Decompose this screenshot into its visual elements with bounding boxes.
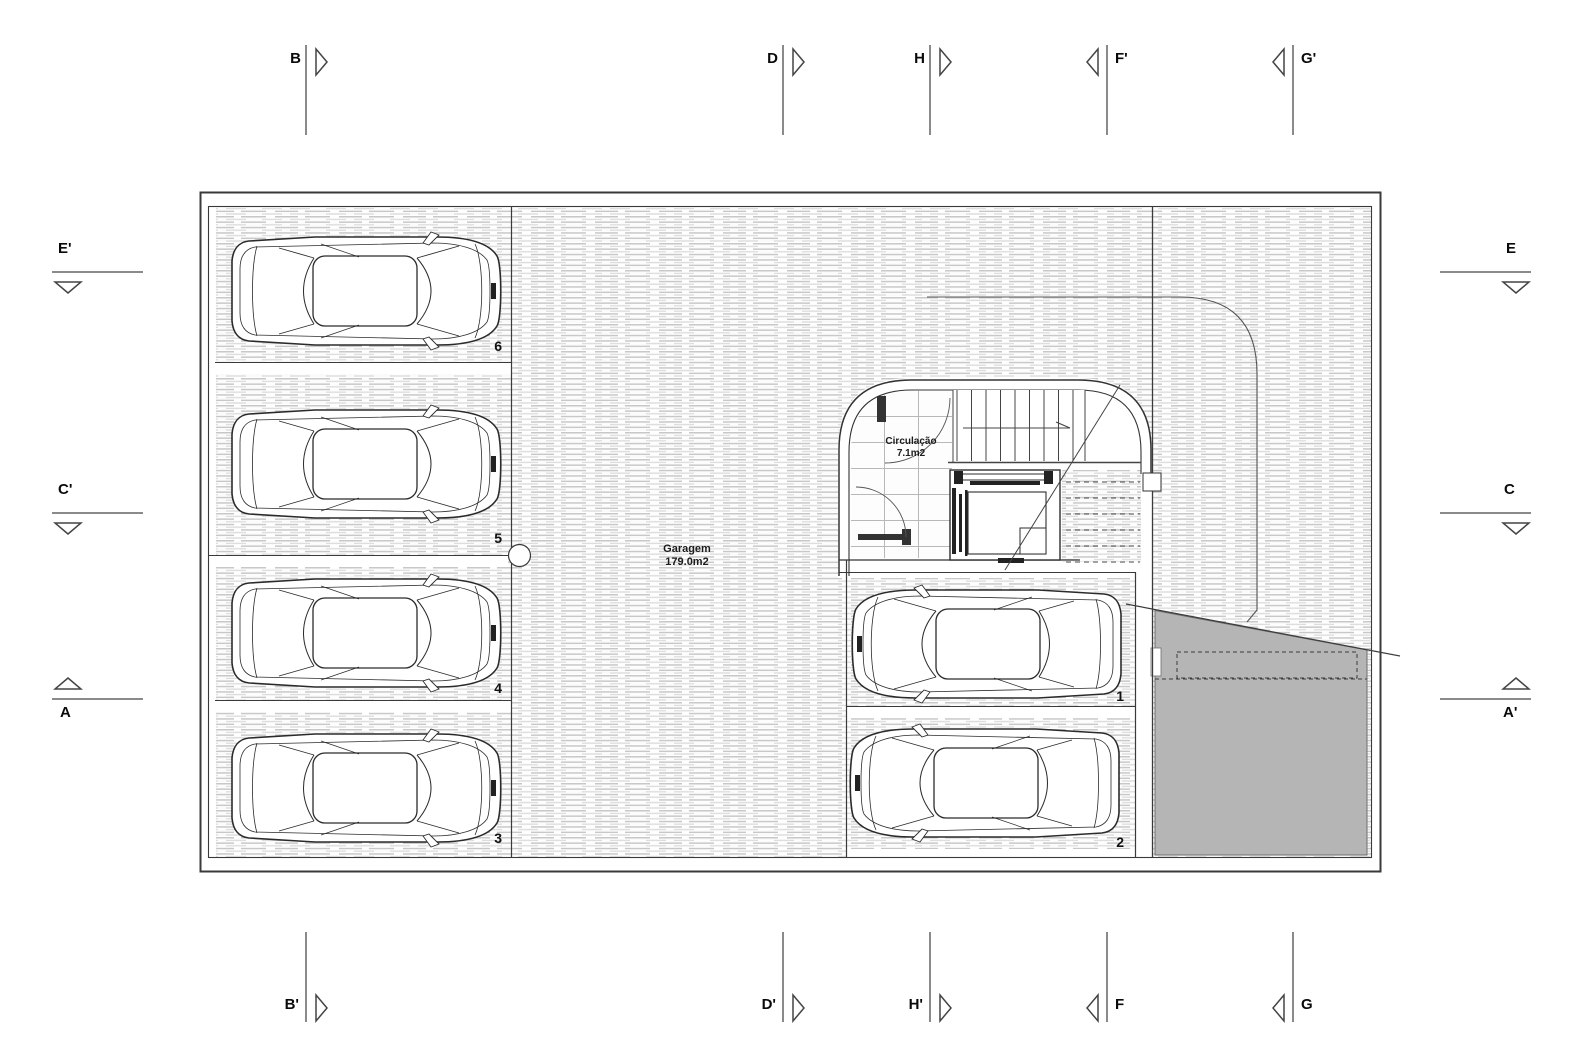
view-direction-icon-F2 (1085, 47, 1100, 77)
section-line-A2 (1440, 698, 1531, 700)
ramp-slope-line (1126, 604, 1400, 656)
garage-floor-hatch (215, 207, 1372, 858)
door-bottom (856, 487, 911, 545)
garage-room-label: Garagem 179.0m2 (632, 543, 742, 569)
garage-room-name: Garagem (632, 543, 742, 556)
car-stall-1 (852, 585, 1121, 703)
section-line-F2 (1106, 45, 1108, 135)
car-stall-6 (232, 232, 501, 350)
car-stall-4 (232, 574, 501, 692)
stair-core-area (838, 378, 1152, 578)
section-line-C2 (52, 512, 143, 514)
circulation-room-area: 7.1m2 (861, 448, 961, 460)
view-direction-icon-D (791, 47, 806, 77)
view-direction-icon-D2 (791, 993, 806, 1023)
section-label-C: C (1504, 481, 1515, 498)
section-line-E2 (52, 271, 143, 273)
stall-number-3: 3 (472, 830, 502, 846)
section-line-H2 (929, 932, 931, 1022)
stall-number-1: 1 (1094, 688, 1124, 704)
stall-number-4: 4 (472, 680, 502, 696)
section-line-E (1440, 271, 1531, 273)
stair-section-cut-line (1005, 385, 1120, 570)
circulation-floor-tiles (851, 391, 952, 558)
section-label-C2: C' (58, 481, 72, 498)
view-direction-icon-G2 (1271, 47, 1286, 77)
section-line-G2 (1292, 45, 1294, 135)
view-direction-icon-C2 (53, 521, 83, 536)
section-label-D2: D' (730, 996, 776, 1013)
stall-number-2: 2 (1094, 834, 1124, 850)
section-line-D (782, 45, 784, 135)
section-line-A (52, 698, 143, 700)
stair-run (948, 390, 1141, 463)
car-stall-5 (232, 405, 501, 523)
section-line-B (305, 45, 307, 135)
floor-plan-canvas: Garagem 179.0m2 Circulação 7.1m2 6 5 4 3… (0, 0, 1572, 1058)
view-direction-icon-A2 (1501, 676, 1531, 691)
car-stall-2 (850, 724, 1119, 842)
section-label-D: D (732, 50, 778, 67)
section-label-F2: F' (1115, 50, 1128, 67)
section-line-C (1440, 512, 1531, 514)
section-label-G: G (1301, 996, 1313, 1013)
section-label-H: H (879, 50, 925, 67)
stall-number-5: 5 (472, 530, 502, 546)
view-direction-icon-E2 (53, 280, 83, 295)
section-label-A: A (60, 704, 71, 721)
garage-room-area: 179.0m2 (632, 556, 742, 569)
section-label-E2: E' (58, 240, 72, 257)
ramp-area (1126, 604, 1400, 855)
section-label-E: E (1506, 240, 1516, 257)
stall-number-6: 6 (472, 338, 502, 354)
section-label-B: B (255, 50, 301, 67)
garage-plan-drawing (0, 0, 1572, 1058)
section-label-F: F (1115, 996, 1124, 1013)
stair-core (839, 380, 1161, 576)
ramp-dashed-lines (1066, 482, 1140, 562)
column (509, 545, 531, 567)
circulation-room-name: Circulação (861, 436, 961, 448)
elevator-car (968, 492, 1046, 554)
view-direction-icon-A (53, 676, 83, 691)
view-direction-icon-B2 (314, 993, 329, 1023)
elevator (950, 470, 1060, 563)
view-direction-icon-H2 (938, 993, 953, 1023)
circulation-room-label: Circulação 7.1m2 (861, 436, 961, 460)
section-label-A2: A' (1503, 704, 1517, 721)
section-label-G2: G' (1301, 50, 1316, 67)
view-direction-icon-H (938, 47, 953, 77)
view-direction-icon-B (314, 47, 329, 77)
garage-walls (201, 193, 1381, 872)
section-line-H (929, 45, 931, 135)
section-line-G (1292, 932, 1294, 1022)
section-line-F (1106, 932, 1108, 1022)
view-direction-icon-C (1501, 521, 1531, 536)
view-direction-icon-G (1271, 993, 1286, 1023)
drive-path (927, 297, 1257, 622)
section-line-B2 (305, 932, 307, 1022)
view-direction-icon-E (1501, 280, 1531, 295)
section-line-D2 (782, 932, 784, 1022)
car-stall-3 (232, 729, 501, 847)
section-label-H2: H' (877, 996, 923, 1013)
view-direction-icon-F (1085, 993, 1100, 1023)
section-label-B2: B' (253, 996, 299, 1013)
